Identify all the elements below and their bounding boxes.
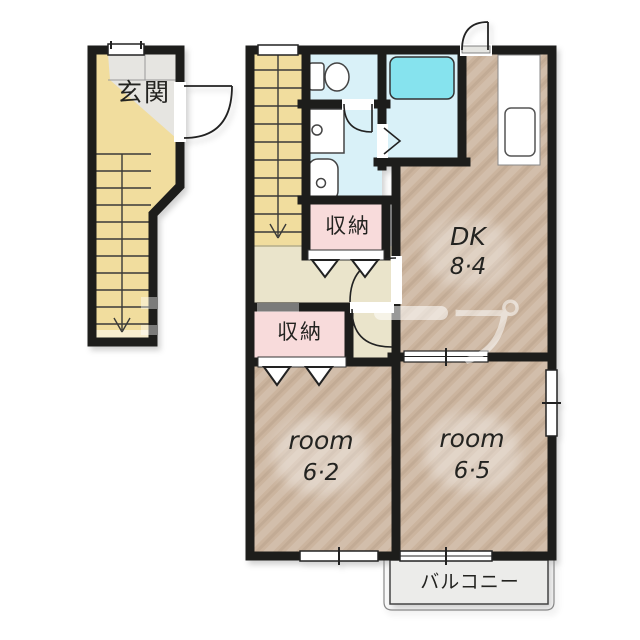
floorplan-page: 玄関 収納 収納 DK 8·4 room 6·2 room 6·5 バルコニー … <box>0 0 640 640</box>
closet-track <box>308 250 384 260</box>
entry-door-sill <box>462 46 490 53</box>
storage-lower-label: 収納 <box>258 320 342 345</box>
entrance-door-swing <box>184 86 232 138</box>
room-right-label: room <box>428 424 516 454</box>
entrance-label: 玄関 <box>106 78 182 108</box>
dk-label: DK <box>426 222 510 252</box>
room-left-size: 6·2 <box>277 460 365 488</box>
wash-basin-drain <box>317 179 326 188</box>
watermark-fragment-patch <box>141 325 157 335</box>
washing-machine-dial <box>312 125 322 135</box>
toilet-bowl <box>325 63 349 91</box>
bathtub <box>390 57 454 99</box>
door-gap <box>342 99 374 110</box>
watermark-dash <box>374 306 448 320</box>
storage-upper-label: 収納 <box>306 214 390 239</box>
watermark-char: プ <box>446 276 520 383</box>
room-left-label: room <box>277 426 365 456</box>
kitchen-sink <box>505 108 535 156</box>
balcony-label: バルコニー <box>408 571 532 594</box>
closet-track <box>258 357 346 367</box>
window <box>258 45 298 55</box>
door-gap <box>391 256 402 304</box>
watermark-fragment-patch <box>257 303 299 312</box>
window <box>108 44 144 55</box>
room-right-size: 6·5 <box>428 458 516 486</box>
watermark-fragment-patch <box>141 297 157 309</box>
toilet-tank <box>309 63 324 90</box>
